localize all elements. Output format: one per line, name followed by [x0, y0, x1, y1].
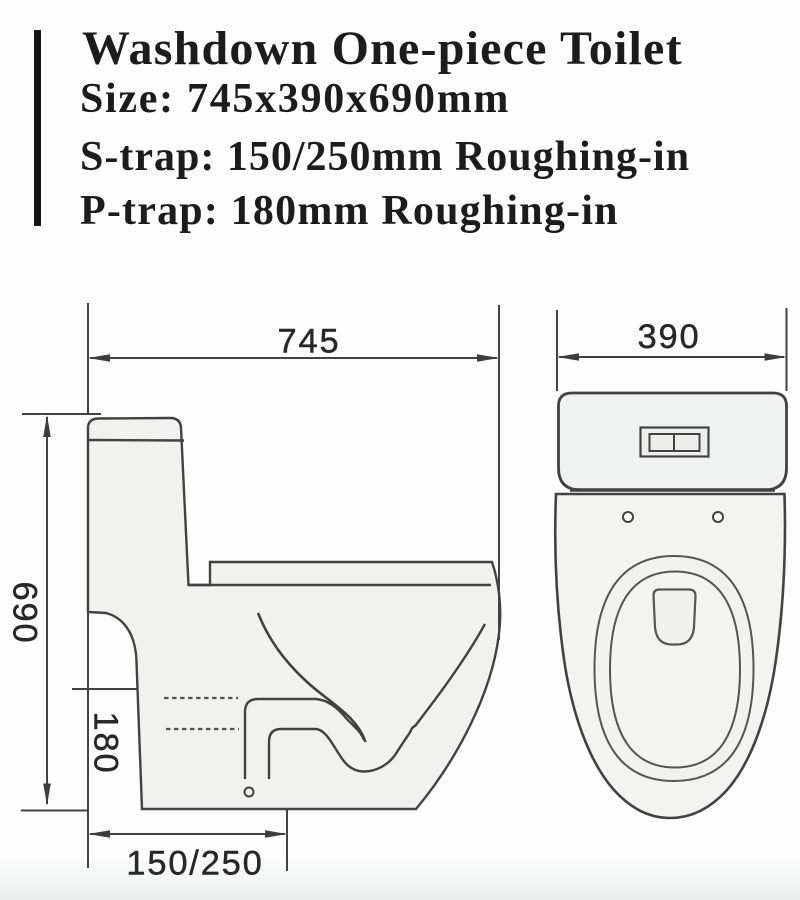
svg-text:745: 745 [278, 323, 341, 361]
svg-text:150/250: 150/250 [126, 845, 263, 883]
svg-text:690: 690 [6, 582, 44, 645]
svg-text:390: 390 [638, 318, 701, 356]
svg-text:180: 180 [87, 712, 125, 775]
